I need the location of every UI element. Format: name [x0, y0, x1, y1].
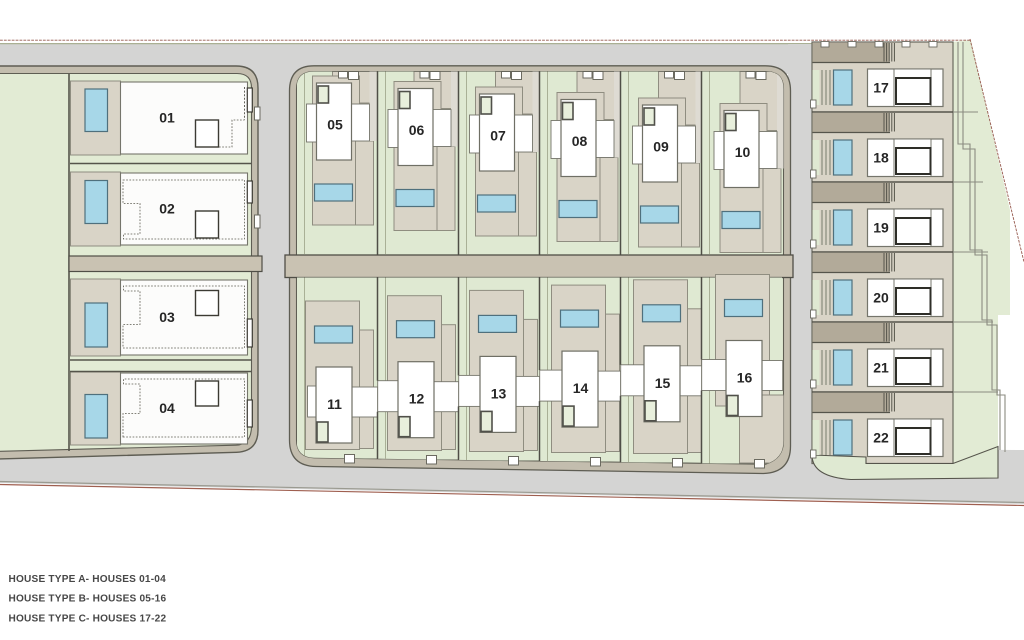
svg-text:11: 11: [327, 396, 342, 412]
svg-text:21: 21: [873, 360, 889, 376]
svg-text:17: 17: [873, 80, 889, 96]
svg-text:18: 18: [873, 150, 889, 166]
svg-text:20: 20: [873, 290, 889, 306]
svg-text:16: 16: [737, 370, 753, 386]
svg-text:05: 05: [327, 117, 343, 133]
svg-text:01: 01: [159, 110, 175, 126]
svg-text:06: 06: [409, 122, 425, 138]
svg-text:15: 15: [655, 375, 671, 391]
svg-text:02: 02: [159, 201, 175, 217]
svg-text:HOUSE TYPE B- HOUSES 05-16: HOUSE TYPE B- HOUSES 05-16: [9, 594, 167, 605]
svg-text:08: 08: [572, 133, 588, 149]
svg-text:07: 07: [490, 128, 506, 144]
svg-text:14: 14: [573, 380, 589, 396]
svg-text:09: 09: [653, 139, 669, 155]
svg-text:22: 22: [873, 430, 889, 446]
svg-text:03: 03: [159, 309, 175, 325]
svg-text:10: 10: [735, 144, 751, 160]
svg-text:04: 04: [159, 400, 175, 416]
svg-text:HOUSE TYPE A- HOUSES 01-04: HOUSE TYPE A- HOUSES 01-04: [9, 574, 167, 585]
svg-text:12: 12: [409, 391, 425, 407]
svg-text:13: 13: [491, 385, 507, 401]
svg-text:HOUSE TYPE C- HOUSES 17-22: HOUSE TYPE C- HOUSES 17-22: [9, 614, 167, 625]
svg-text:19: 19: [873, 220, 889, 236]
